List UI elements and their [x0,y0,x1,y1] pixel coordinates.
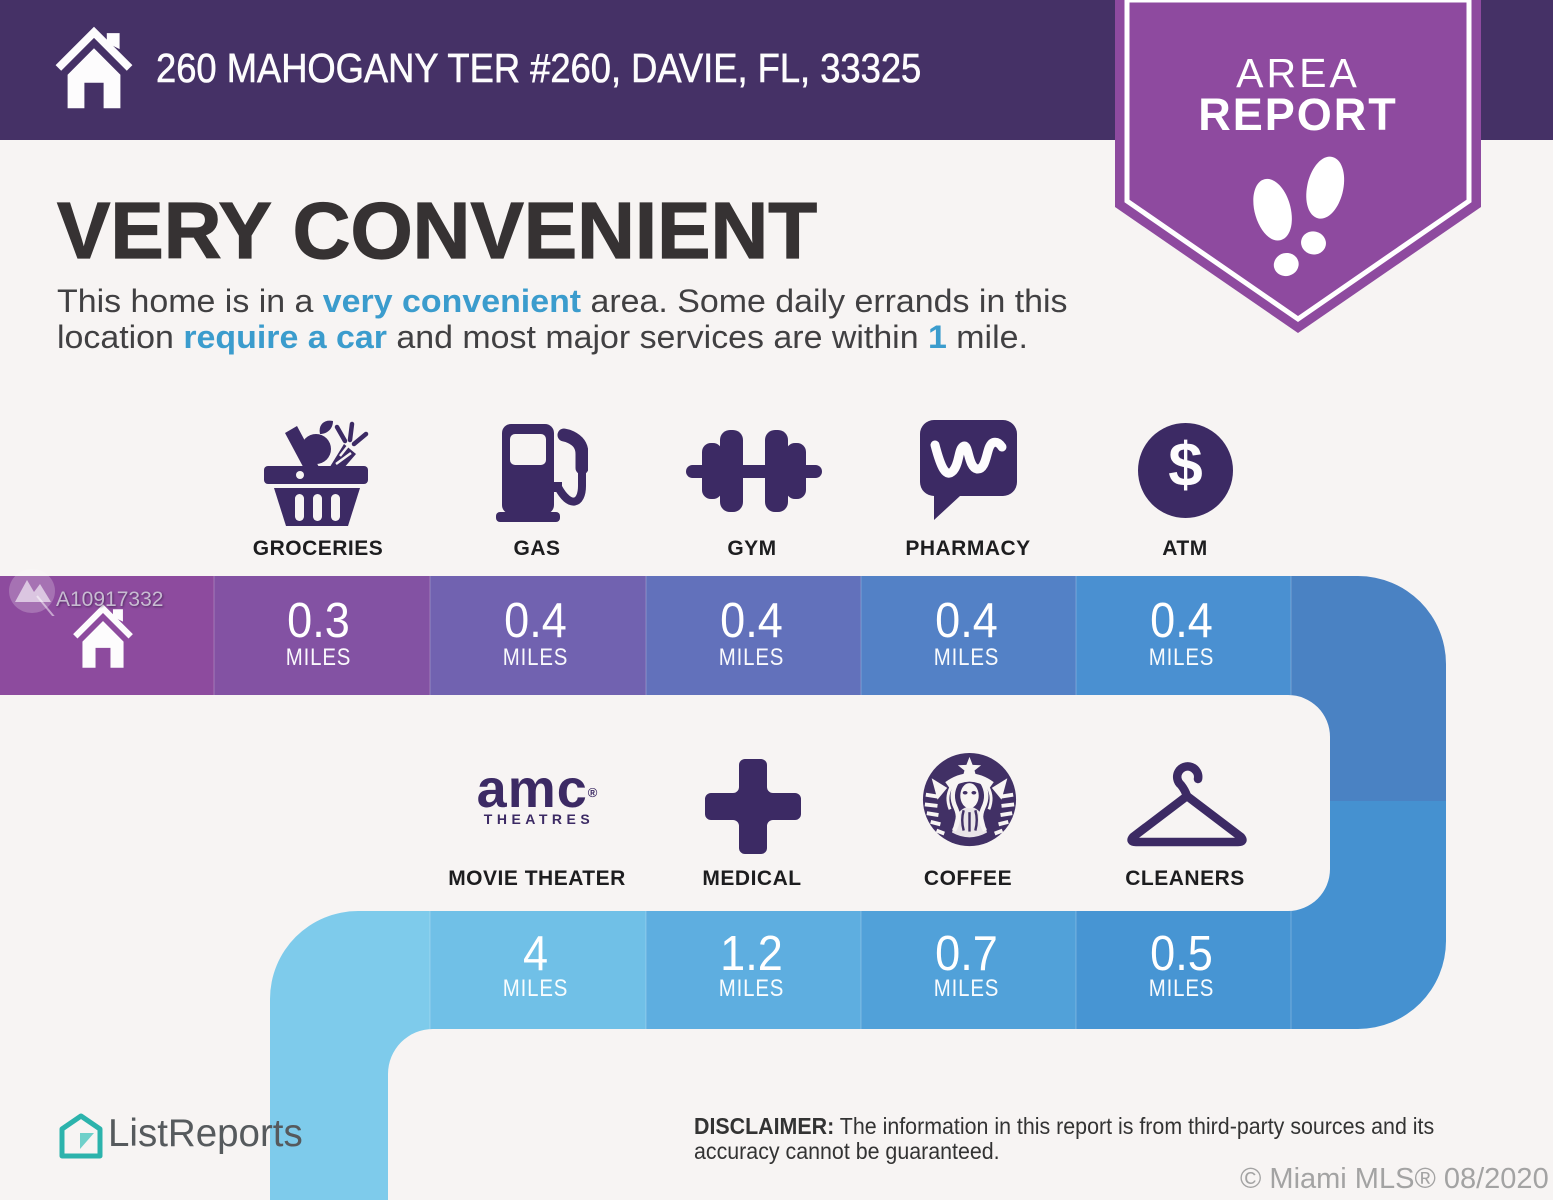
svg-text:REPORT: REPORT [1198,89,1398,140]
